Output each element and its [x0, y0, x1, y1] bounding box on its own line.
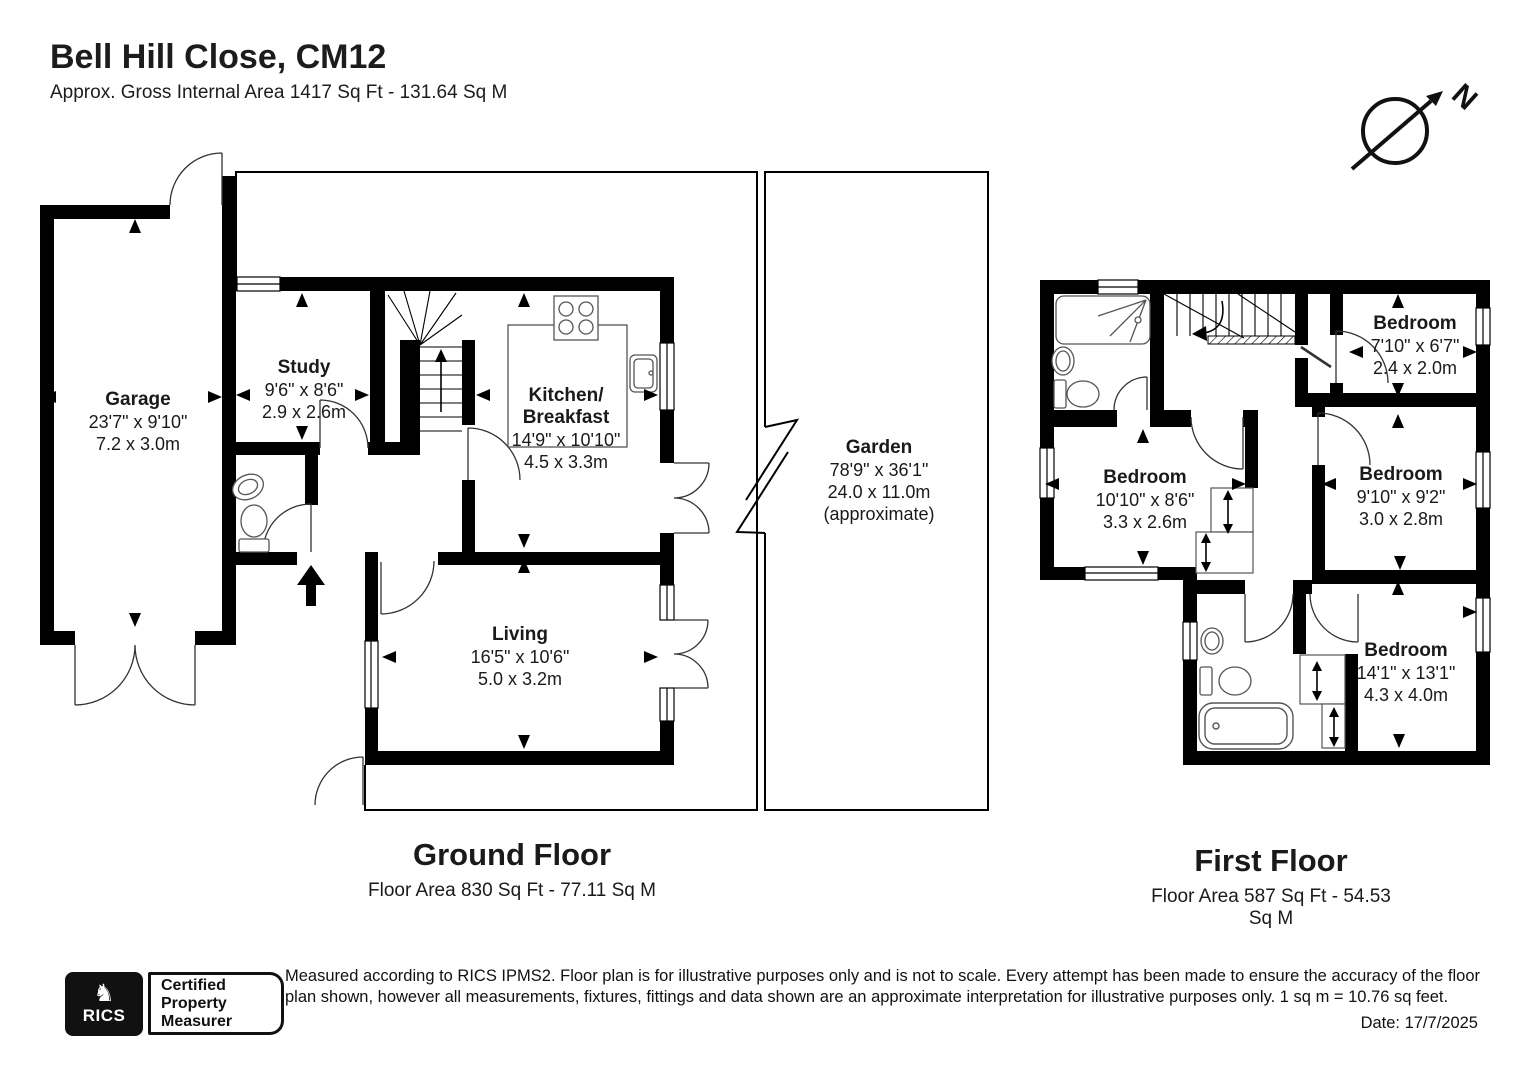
lower-bathroom-door-arc [1245, 594, 1293, 642]
room-dim-imperial: 23'7" x 9'10" [89, 411, 188, 433]
garage-double-door-arcs [75, 645, 195, 705]
room-name: Study [262, 357, 346, 379]
bedroom-cupboard [1300, 655, 1345, 748]
rics-badge: ♞ RICS Certified Property Measurer [65, 972, 284, 1036]
room-dim-metric: 4.3 x 4.0m [1357, 684, 1456, 706]
window [660, 343, 674, 410]
ground-stairs [388, 291, 462, 431]
room-name: Bedroom [1357, 464, 1446, 486]
bedroom-mr-door-arc [1318, 413, 1370, 465]
window [660, 585, 674, 620]
shower-icon [1056, 296, 1150, 344]
disclaimer-text: Measured according to RICS IPMS2. Floor … [285, 966, 1497, 1008]
room-dim-imperial: 78'9" x 36'1" [823, 459, 934, 481]
room-name: Bedroom [1357, 640, 1456, 662]
room-dim-imperial: 10'10" x 8'6" [1096, 489, 1195, 511]
room-label-kitchen: Kitchen/ Breakfast 14'9" x 10'10" 4.5 x … [512, 385, 621, 473]
rics-logo-text: RICS [83, 1006, 126, 1026]
room-dim-note: (approximate) [823, 503, 934, 525]
window [1476, 308, 1490, 345]
room-name: Living [471, 624, 570, 646]
compass-north-label: N [1445, 78, 1483, 117]
bathroom-door-arc [1114, 377, 1147, 410]
kitchen-french-doors [674, 463, 709, 533]
landing-cupboard [1196, 488, 1253, 573]
window [1040, 448, 1054, 498]
bedroom-left-door-arc [1191, 417, 1243, 469]
window [365, 641, 378, 708]
rics-lion-icon: ♞ [93, 982, 115, 1006]
stairs-up-arrow [435, 349, 447, 362]
ground-doors [75, 153, 709, 805]
ground-floor-title: Ground Floor Floor Area 830 Sq Ft - 77.1… [368, 837, 656, 902]
hob-icon [554, 296, 598, 340]
room-name: Bedroom [1096, 467, 1195, 489]
boundary-break-zigzag [737, 420, 797, 533]
room-dim-imperial: 16'5" x 10'6" [471, 646, 570, 668]
stairs-down-arrow [1192, 326, 1207, 341]
room-dim-metric: 7.2 x 3.0m [89, 433, 188, 455]
room-label-garden: Garden 78'9" x 36'1" 24.0 x 11.0m (appro… [823, 437, 934, 525]
window [1476, 598, 1490, 652]
room-dim-metric: 4.5 x 3.3m [512, 451, 621, 473]
room-dim-metric: 5.0 x 3.2m [471, 668, 570, 690]
room-name: Bedroom [1371, 313, 1460, 335]
room-dim-imperial: 9'10" x 9'2" [1357, 486, 1446, 508]
room-dim-metric: 24.0 x 11.0m [823, 481, 934, 503]
room-label-bedroom-left: Bedroom 10'10" x 8'6" 3.3 x 2.6m [1096, 467, 1195, 533]
room-dim-imperial: 7'10" x 6'7" [1371, 335, 1460, 357]
room-dim-metric: 2.4 x 2.0m [1371, 357, 1460, 379]
kitchen-sink-icon [630, 355, 657, 392]
room-name: Garage [89, 389, 188, 411]
room-label-bedroom-mid-right: Bedroom 9'10" x 9'2" 3.0 x 2.8m [1357, 464, 1446, 530]
wc-door-arc [263, 504, 311, 552]
badge-line: Measurer [161, 1013, 281, 1031]
date-label: Date: 17/7/2025 [1361, 1014, 1478, 1033]
rics-logo: ♞ RICS [65, 972, 143, 1036]
room-label-living: Living 16'5" x 10'6" 5.0 x 3.2m [471, 624, 570, 690]
room-label-bedroom-bottom: Bedroom 14'1" x 13'1" 4.3 x 4.0m [1357, 640, 1456, 706]
room-dim-metric: 3.3 x 2.6m [1096, 511, 1195, 533]
first-stairs [1164, 294, 1295, 344]
ground-windows [237, 277, 674, 721]
lower-bathroom-toilet-icon [1200, 667, 1251, 695]
room-label-garage: Garage 23'7" x 9'10" 7.2 x 3.0m [89, 389, 188, 455]
bathroom-toilet-icon [1054, 380, 1099, 408]
living-door-arc [381, 561, 434, 614]
bedroom-bottom-door-arc [1310, 594, 1358, 642]
room-dim-metric: 3.0 x 2.8m [1357, 508, 1446, 530]
room-name: Kitchen/ [512, 385, 621, 407]
badge-line: Certified [161, 977, 281, 995]
entrance-arrow [297, 565, 325, 606]
window [660, 688, 674, 721]
room-dim-metric: 2.9 x 2.6m [262, 401, 346, 423]
floorplan-page: Bell Hill Close, CM12 Approx. Gross Inte… [0, 0, 1528, 1080]
living-french-doors [674, 620, 708, 688]
room-name: Breakfast [512, 407, 621, 429]
compass: N [1352, 78, 1484, 169]
bathroom-sink-icon [1052, 347, 1074, 375]
lower-bathroom-sink-icon [1201, 628, 1223, 654]
room-label-study: Study 9'6" x 8'6" 2.9 x 2.6m [262, 357, 346, 423]
floor-name: First Floor [1143, 843, 1400, 879]
window [1098, 280, 1138, 294]
floor-area: Floor Area 830 Sq Ft - 77.11 Sq M [368, 880, 656, 902]
bathtub-icon [1199, 703, 1293, 749]
room-label-bedroom-top-right: Bedroom 7'10" x 6'7" 2.4 x 2.0m [1371, 313, 1460, 379]
room-dim-imperial: 14'9" x 10'10" [512, 429, 621, 451]
window [1085, 567, 1158, 580]
first-floor-title: First Floor Floor Area 587 Sq Ft - 54.53… [1143, 843, 1400, 930]
garage-top-door-arc [170, 153, 222, 205]
room-name: Garden [823, 437, 934, 459]
room-dim-imperial: 14'1" x 13'1" [1357, 662, 1456, 684]
side-gate-arc [315, 757, 363, 805]
floor-name: Ground Floor [368, 837, 656, 873]
badge-line: Property [161, 995, 281, 1013]
floor-area: Floor Area 587 Sq Ft - 54.53 Sq M [1143, 886, 1400, 930]
window [1476, 452, 1490, 508]
window [237, 277, 280, 291]
window [1183, 622, 1197, 660]
wc-toilet-icon [239, 505, 269, 552]
certified-property-measurer-badge: Certified Property Measurer [148, 972, 284, 1035]
room-dim-imperial: 9'6" x 8'6" [262, 379, 346, 401]
